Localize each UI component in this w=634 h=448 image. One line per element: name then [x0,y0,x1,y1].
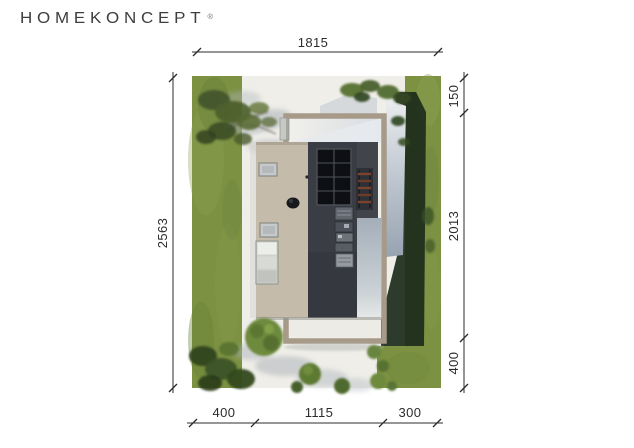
dim-right [460,72,468,393]
dim-label-bottom-3: 300 [399,405,422,420]
skylight-large [317,149,351,205]
dim-label-right-2: 2013 [446,211,461,242]
dim-label-bottom-2: 1115 [305,405,334,420]
roof-vent [287,198,300,209]
site-plan-drawing: 1815 400 1115 300 2563 150 2013 400 [0,0,634,448]
hvac-units [335,207,353,267]
roof-ladder [356,168,373,210]
glass-wall-strip [357,218,381,318]
dim-bottom [187,419,443,427]
site-plan-page: HOMEKONCEPT® [0,0,634,448]
dim-label-right-3: 400 [446,352,461,375]
roof-hatch-panels [256,241,278,284]
skylight-small-2 [260,223,278,237]
dim-left [169,72,177,393]
dim-label-top: 1815 [298,35,329,50]
vent-pipe [305,175,308,178]
roof-side-shadow [250,142,256,318]
skylight-small-1 [259,163,277,176]
bush-driveway [245,318,283,356]
dim-label-bottom-1: 400 [213,405,236,420]
terrace [289,320,381,337]
dim-label-left: 2563 [155,218,170,249]
roof-edge-shadow [256,317,381,320]
chimney [280,118,289,140]
dim-label-right-1: 150 [446,85,461,108]
